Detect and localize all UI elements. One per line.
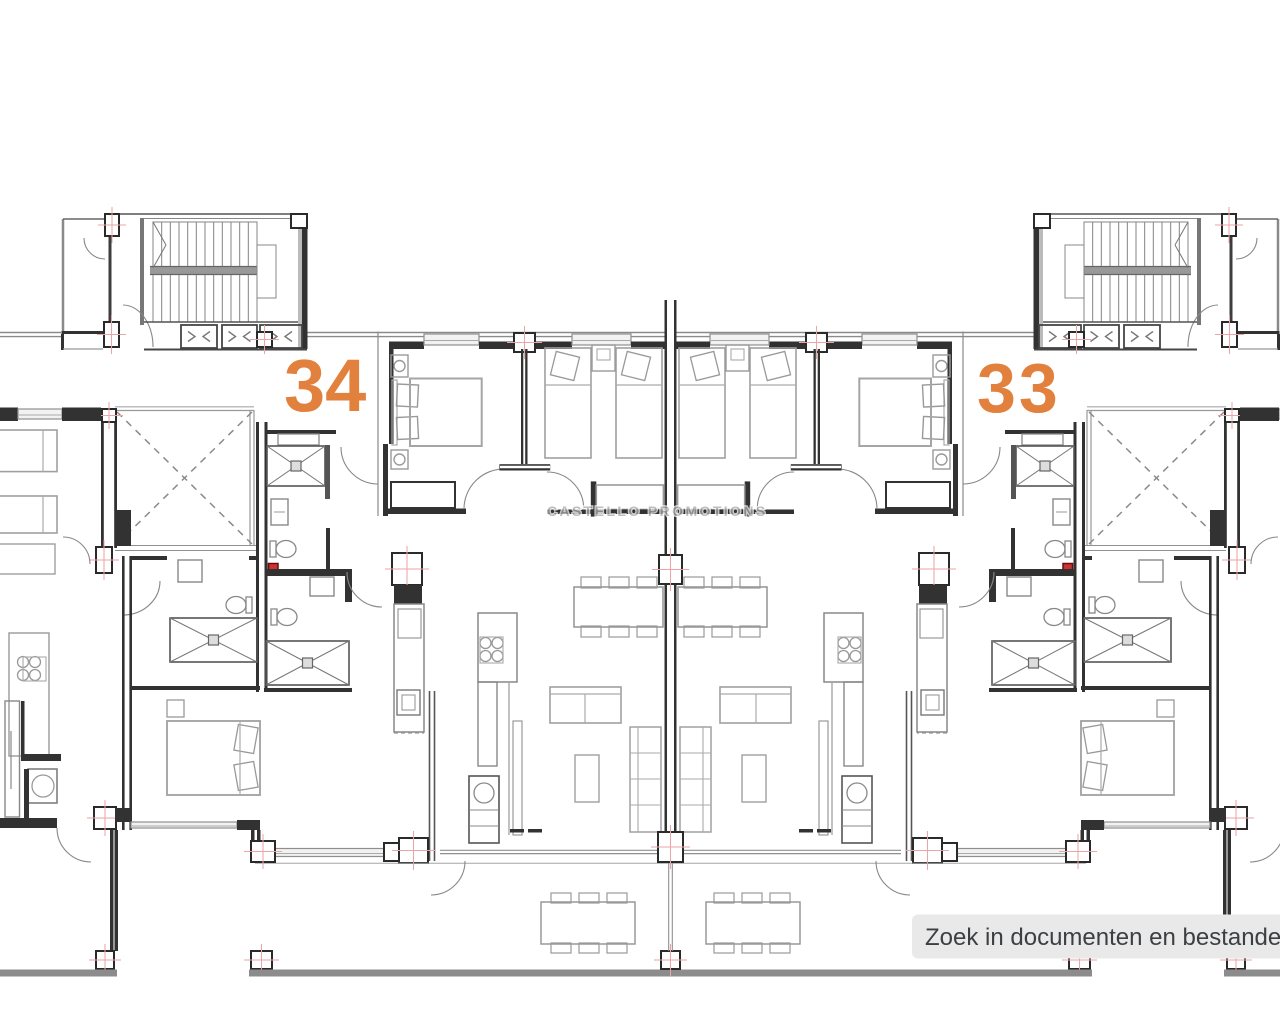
svg-text:CASTELLO PROMOTIONS: CASTELLO PROMOTIONS <box>547 503 768 519</box>
svg-text:Zoek in documenten en bestande: Zoek in documenten en bestanden <box>925 924 1280 951</box>
svg-text:33: 33 <box>977 349 1061 427</box>
svg-text:34: 34 <box>284 344 366 427</box>
